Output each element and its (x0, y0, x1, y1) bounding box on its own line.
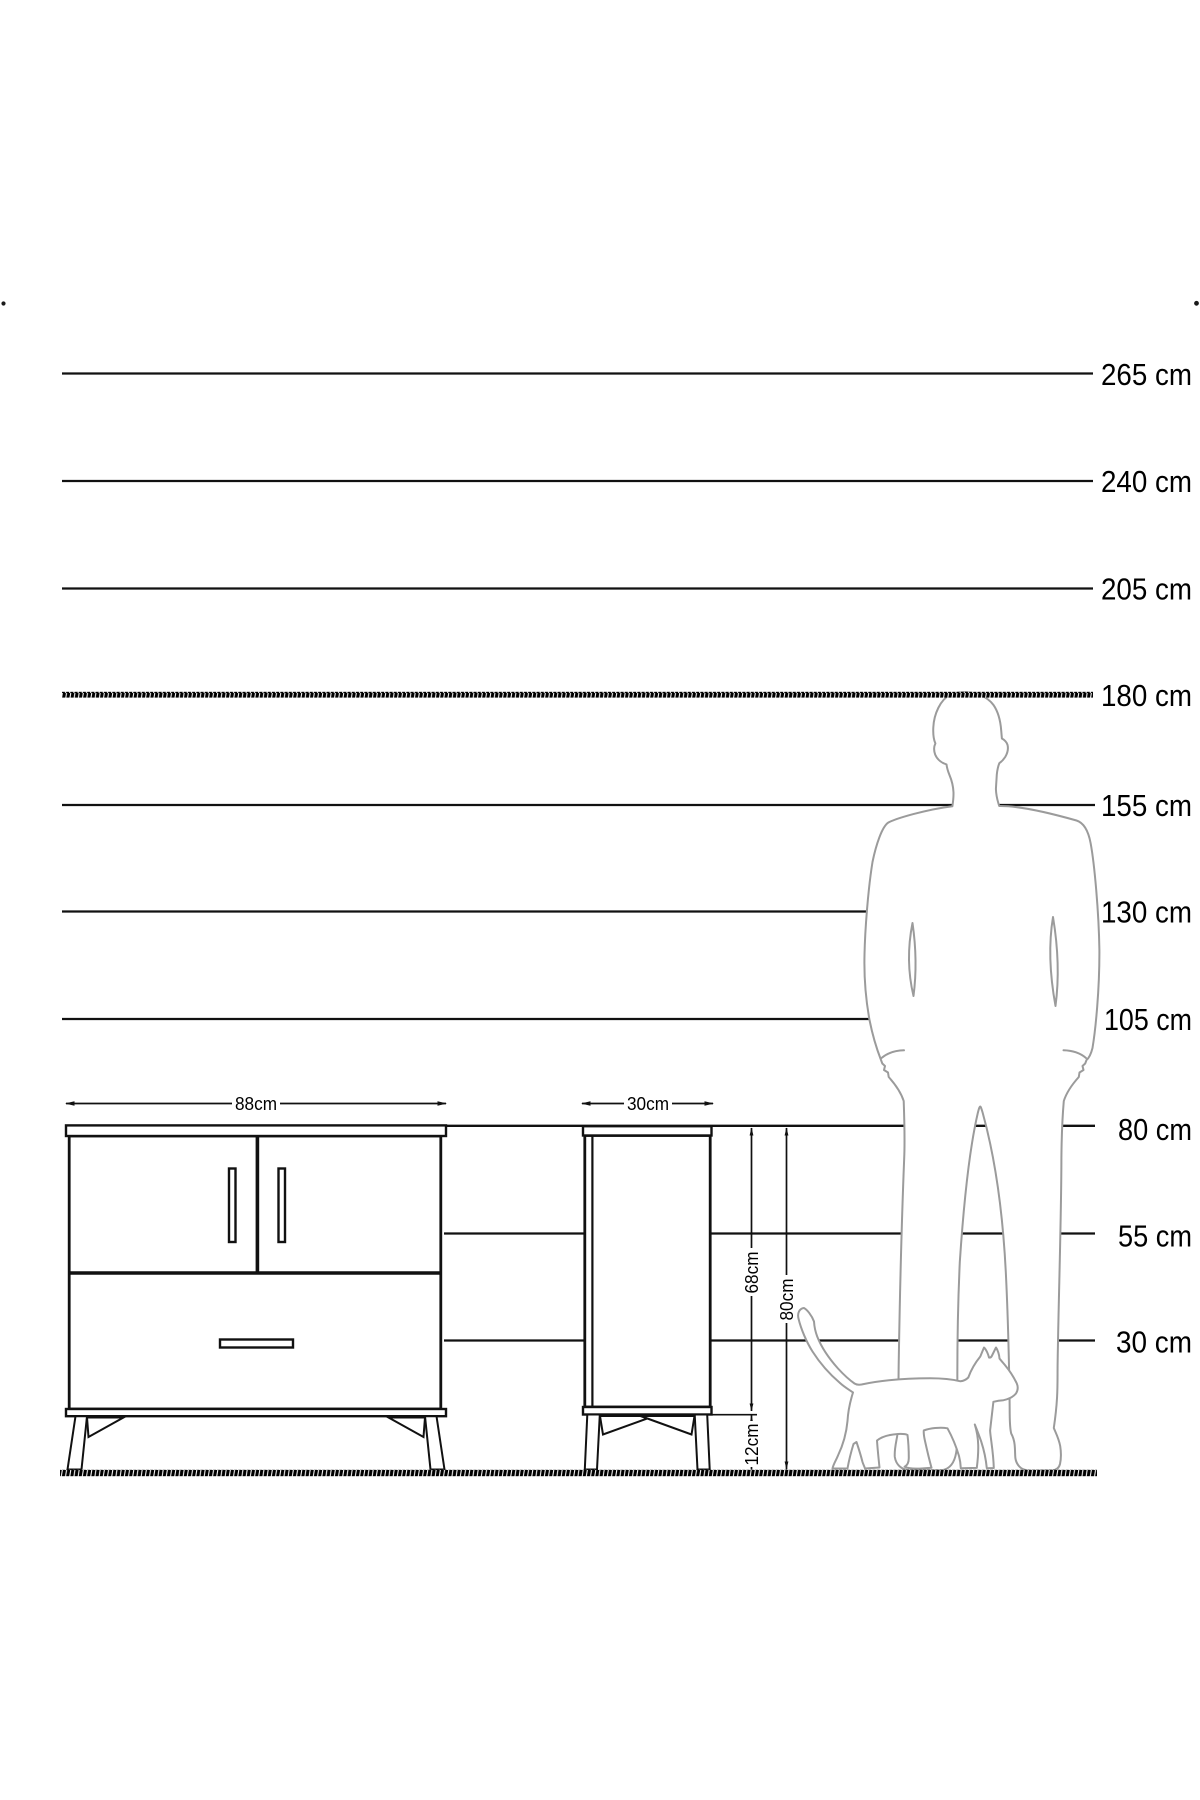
svg-text:12cm: 12cm (742, 1424, 762, 1466)
svg-text:80 cm: 80 cm (1118, 1112, 1192, 1147)
svg-text:180 cm: 180 cm (1101, 678, 1192, 713)
svg-text:240 cm: 240 cm (1101, 464, 1192, 499)
svg-text:88cm: 88cm (235, 1094, 277, 1114)
svg-text:55 cm: 55 cm (1118, 1219, 1192, 1254)
svg-text:130 cm: 130 cm (1101, 895, 1192, 930)
svg-text:68cm: 68cm (742, 1252, 762, 1294)
svg-text:105 cm: 105 cm (1104, 1002, 1192, 1037)
svg-text:155 cm: 155 cm (1101, 788, 1192, 823)
svg-text:205 cm: 205 cm (1101, 572, 1192, 607)
svg-text:30 cm: 30 cm (1116, 1325, 1192, 1360)
svg-text:80cm: 80cm (777, 1279, 797, 1321)
svg-text:30cm: 30cm (627, 1094, 669, 1114)
svg-text:265 cm: 265 cm (1101, 357, 1192, 392)
